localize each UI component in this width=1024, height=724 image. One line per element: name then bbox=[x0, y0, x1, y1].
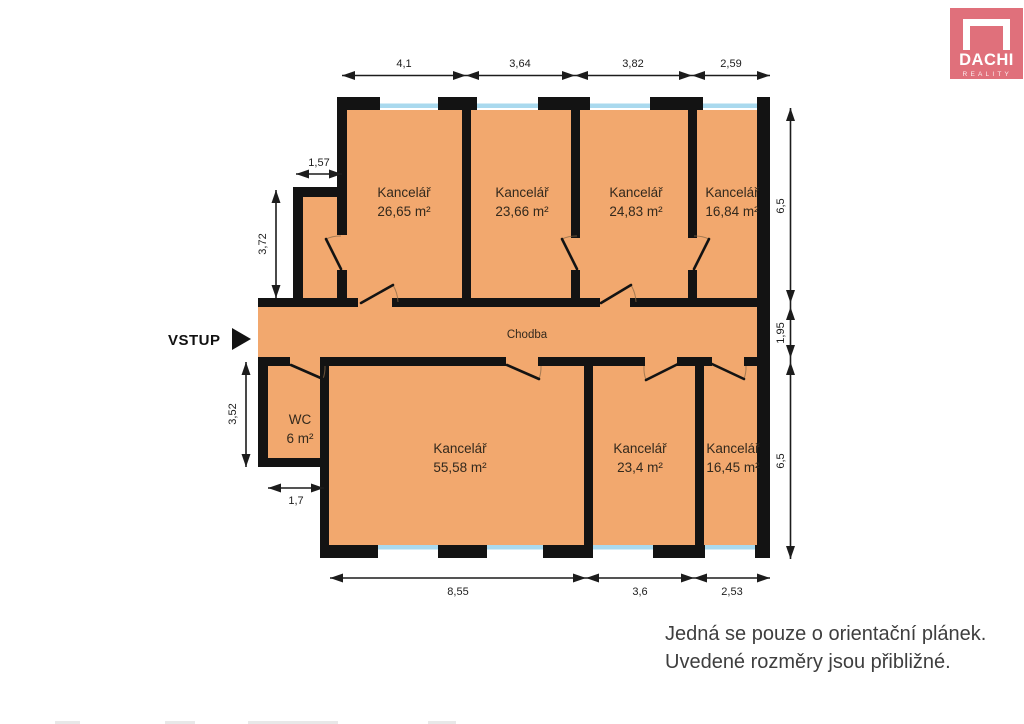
wall bbox=[571, 270, 580, 307]
dim-bottom-2: 3,6 bbox=[632, 586, 647, 598]
entrance-marker: VSTUP bbox=[168, 328, 251, 350]
door-icon bbox=[963, 19, 1010, 50]
wall bbox=[688, 110, 697, 238]
room-top-3-name: Kancelář bbox=[609, 185, 663, 200]
room-wc-area: 6 m² bbox=[287, 431, 315, 446]
wall bbox=[538, 357, 645, 366]
corridor-label: Chodba bbox=[507, 329, 548, 341]
window-icon bbox=[380, 104, 438, 109]
room-top-1-area: 26,65 m² bbox=[377, 204, 431, 219]
wall bbox=[695, 366, 704, 545]
disclaimer-line-2: Uvedené rozměry jsou přibližné. bbox=[665, 648, 986, 676]
dim-bottom-3: 2,53 bbox=[721, 586, 742, 598]
entrance-arrow-icon bbox=[232, 328, 251, 350]
dim-right-1: 6,5 bbox=[775, 198, 787, 213]
logo-brand-text: DACHI bbox=[959, 51, 1014, 70]
wall bbox=[584, 366, 593, 545]
wall bbox=[324, 357, 506, 366]
top-block-fill bbox=[340, 97, 770, 305]
wall bbox=[293, 187, 303, 307]
dim-left-4: 1,7 bbox=[288, 495, 303, 507]
dachi-logo: DACHI REALITY bbox=[950, 8, 1023, 79]
room-bottom-1-area: 55,58 m² bbox=[433, 460, 487, 475]
wall bbox=[392, 298, 600, 307]
floor-plan: 4,1 3,64 3,82 2,59 8,55 3,6 2,53 6,5 1,9… bbox=[0, 0, 1024, 724]
dim-left-1: 1,57 bbox=[308, 157, 329, 169]
room-top-1-name: Kancelář bbox=[377, 185, 431, 200]
dim-right-3: 6,5 bbox=[775, 453, 787, 468]
window-icon bbox=[593, 545, 653, 550]
wall bbox=[744, 357, 757, 366]
wall bbox=[258, 298, 358, 307]
wall bbox=[337, 110, 347, 235]
room-bottom-1-name: Kancelář bbox=[433, 441, 487, 456]
wall bbox=[258, 357, 268, 467]
wall bbox=[757, 97, 770, 558]
room-bottom-2-area: 23,4 m² bbox=[617, 460, 663, 475]
window-icon bbox=[487, 545, 543, 550]
room-bottom-2-name: Kancelář bbox=[613, 441, 667, 456]
wall bbox=[571, 110, 580, 238]
wall bbox=[677, 357, 712, 366]
dim-top-3: 3,82 bbox=[622, 58, 643, 70]
disclaimer: Jedná se pouze o orientační plánek. Uved… bbox=[665, 620, 986, 676]
disclaimer-line-1: Jedná se pouze o orientační plánek. bbox=[665, 620, 986, 648]
floor-plan-page: 4,1 3,64 3,82 2,59 8,55 3,6 2,53 6,5 1,9… bbox=[0, 0, 1024, 724]
room-bottom-3-area: 16,45 m² bbox=[706, 460, 760, 475]
wall bbox=[320, 357, 329, 558]
wall bbox=[462, 110, 471, 307]
room-top-2-name: Kancelář bbox=[495, 185, 549, 200]
wall bbox=[688, 270, 697, 307]
window-icon bbox=[703, 104, 757, 109]
room-top-3-area: 24,83 m² bbox=[609, 204, 663, 219]
room-bottom-3-name: Kancelář bbox=[706, 441, 760, 456]
dim-left-3: 3,52 bbox=[227, 403, 239, 424]
dim-bottom-1: 8,55 bbox=[447, 586, 468, 598]
dim-left-2: 3,72 bbox=[257, 233, 269, 254]
window-icon bbox=[477, 104, 538, 109]
window-icon bbox=[705, 545, 755, 550]
dim-top-2: 3,64 bbox=[509, 58, 530, 70]
entrance-label: VSTUP bbox=[168, 332, 221, 349]
room-wc-name: WC bbox=[289, 412, 312, 427]
dim-top-1: 4,1 bbox=[396, 58, 411, 70]
room-top-4-name: Kancelář bbox=[705, 185, 759, 200]
room-top-4-area: 16,84 m² bbox=[705, 204, 759, 219]
dim-top-4: 2,59 bbox=[720, 58, 741, 70]
dim-right-2: 1,95 bbox=[775, 322, 787, 343]
logo-tagline-text: REALITY bbox=[961, 71, 1012, 78]
window-icon bbox=[590, 104, 650, 109]
wall bbox=[258, 458, 329, 467]
window-icon bbox=[378, 545, 438, 550]
room-top-2-area: 23,66 m² bbox=[495, 204, 549, 219]
